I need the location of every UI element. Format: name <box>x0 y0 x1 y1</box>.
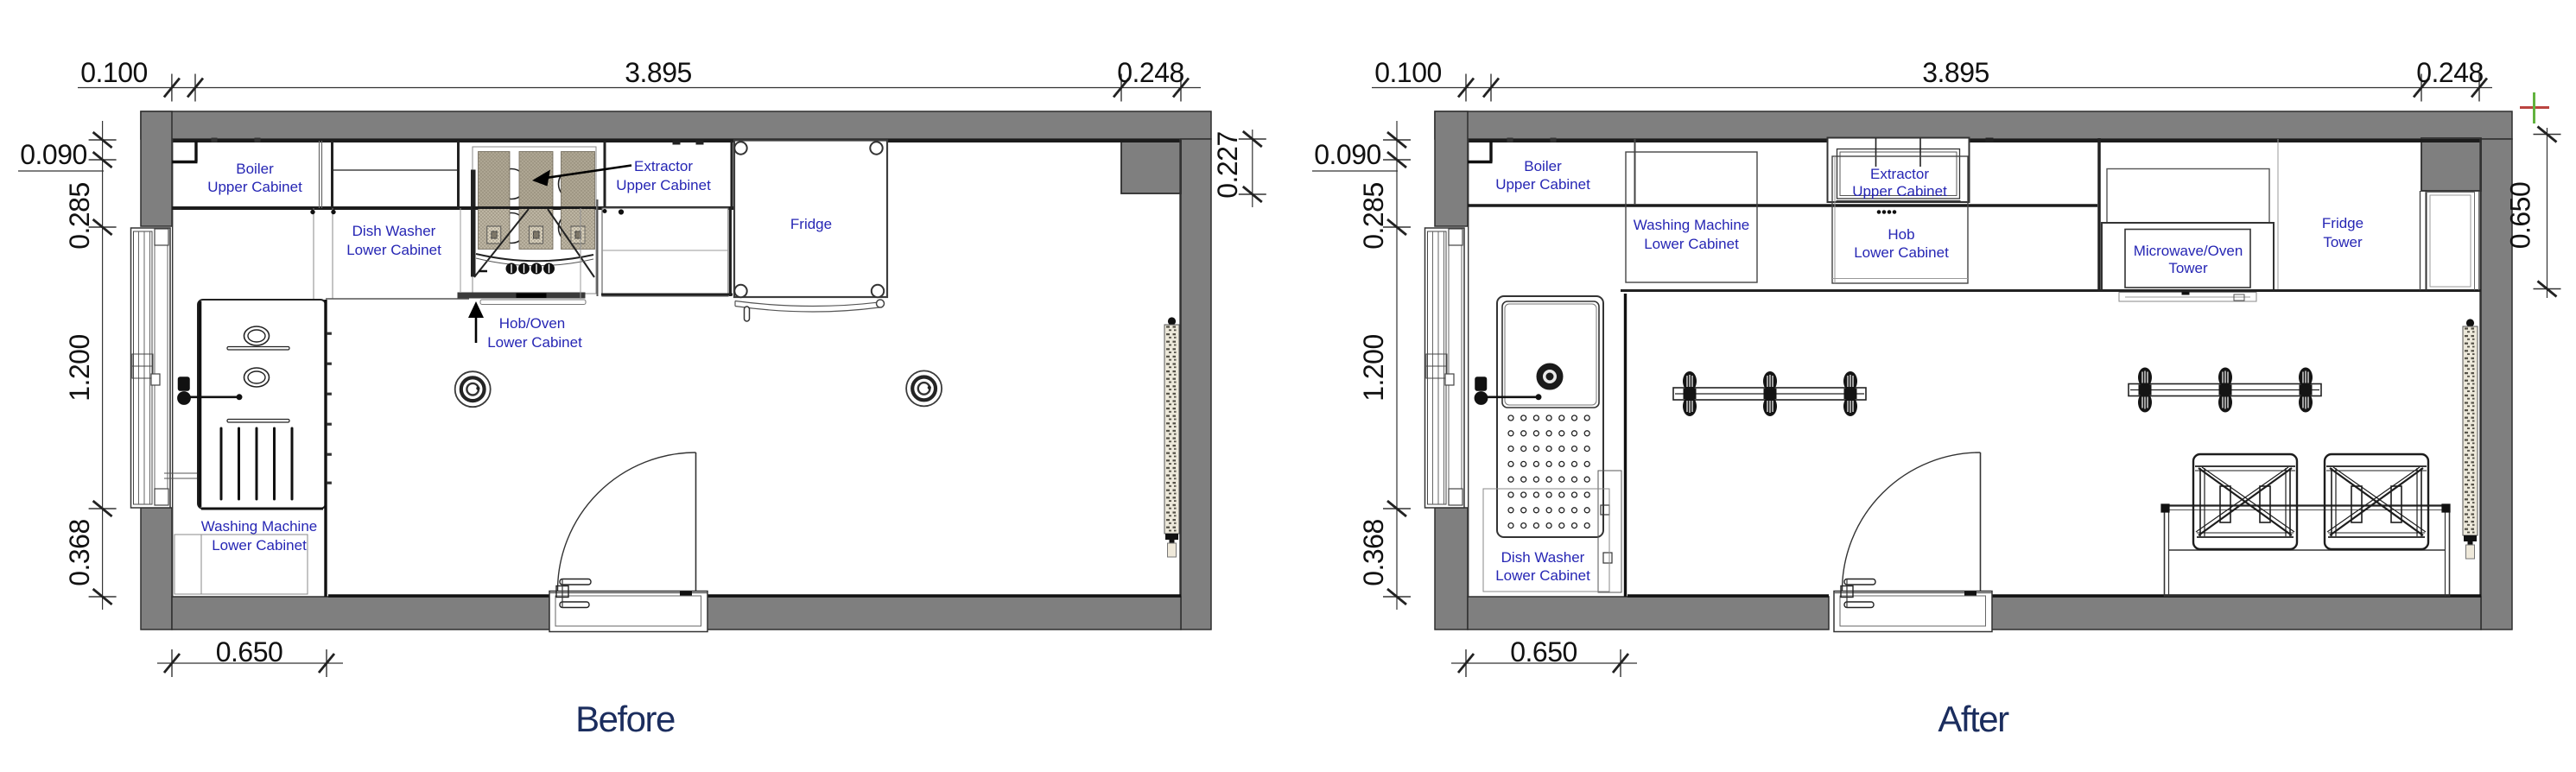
svg-text:Dish Washer: Dish Washer <box>352 223 436 239</box>
svg-text:0.248: 0.248 <box>1117 57 1184 88</box>
svg-text:0.100: 0.100 <box>1374 57 1442 88</box>
svg-text:Hob/Oven: Hob/Oven <box>499 315 566 332</box>
svg-text:Tower: Tower <box>2323 234 2363 250</box>
svg-text:Extractor: Extractor <box>1870 166 1929 182</box>
svg-text:0.650: 0.650 <box>216 636 283 668</box>
svg-text:Upper Cabinet: Upper Cabinet <box>1495 176 1590 193</box>
svg-text:Fridge: Fridge <box>2322 215 2363 231</box>
svg-text:0.368: 0.368 <box>1358 519 1389 586</box>
svg-text:Upper Cabinet: Upper Cabinet <box>616 177 711 193</box>
svg-text:0.090: 0.090 <box>20 139 87 170</box>
svg-text:0.100: 0.100 <box>80 57 148 88</box>
svg-text:Dish Washer: Dish Washer <box>1501 549 1585 566</box>
svg-text:0.368: 0.368 <box>64 519 95 586</box>
svg-text:Lower Cabinet: Lower Cabinet <box>346 242 441 258</box>
svg-text:1.200: 1.200 <box>64 334 95 402</box>
svg-text:3.895: 3.895 <box>1922 57 1989 88</box>
svg-text:0.650: 0.650 <box>2505 182 2536 250</box>
svg-text:Boiler: Boiler <box>1524 158 1562 174</box>
svg-text:Lower Cabinet: Lower Cabinet <box>1495 567 1590 584</box>
svg-text:Microwave/Oven: Microwave/Oven <box>2134 243 2243 259</box>
svg-text:Upper Cabinet: Upper Cabinet <box>207 179 302 195</box>
svg-text:0.650: 0.650 <box>1510 636 1577 668</box>
svg-text:0.090: 0.090 <box>1314 139 1381 170</box>
svg-text:After: After <box>1938 699 2009 739</box>
svg-text:Tower: Tower <box>2168 260 2208 276</box>
svg-text:0.285: 0.285 <box>64 182 95 250</box>
svg-text:Lower Cabinet: Lower Cabinet <box>212 537 307 554</box>
svg-text:Before: Before <box>575 699 675 739</box>
svg-text:Upper Cabinet: Upper Cabinet <box>1852 183 1947 199</box>
svg-text:Lower Cabinet: Lower Cabinet <box>487 334 582 351</box>
svg-text:Washing Machine: Washing Machine <box>1634 217 1750 233</box>
svg-text:Extractor: Extractor <box>634 158 693 174</box>
svg-text:Lower Cabinet: Lower Cabinet <box>1644 236 1739 252</box>
svg-text:0.248: 0.248 <box>2416 57 2484 88</box>
svg-text:Lower Cabinet: Lower Cabinet <box>1854 244 1949 261</box>
svg-text:1.200: 1.200 <box>1358 334 1389 402</box>
svg-text:Washing Machine: Washing Machine <box>201 518 318 535</box>
svg-text:Boiler: Boiler <box>236 161 274 177</box>
svg-text:Fridge: Fridge <box>790 216 832 232</box>
svg-text:0.227: 0.227 <box>1212 131 1243 199</box>
svg-text:3.895: 3.895 <box>625 57 692 88</box>
svg-text:Hob: Hob <box>1888 226 1914 243</box>
svg-text:0.285: 0.285 <box>1358 182 1389 250</box>
